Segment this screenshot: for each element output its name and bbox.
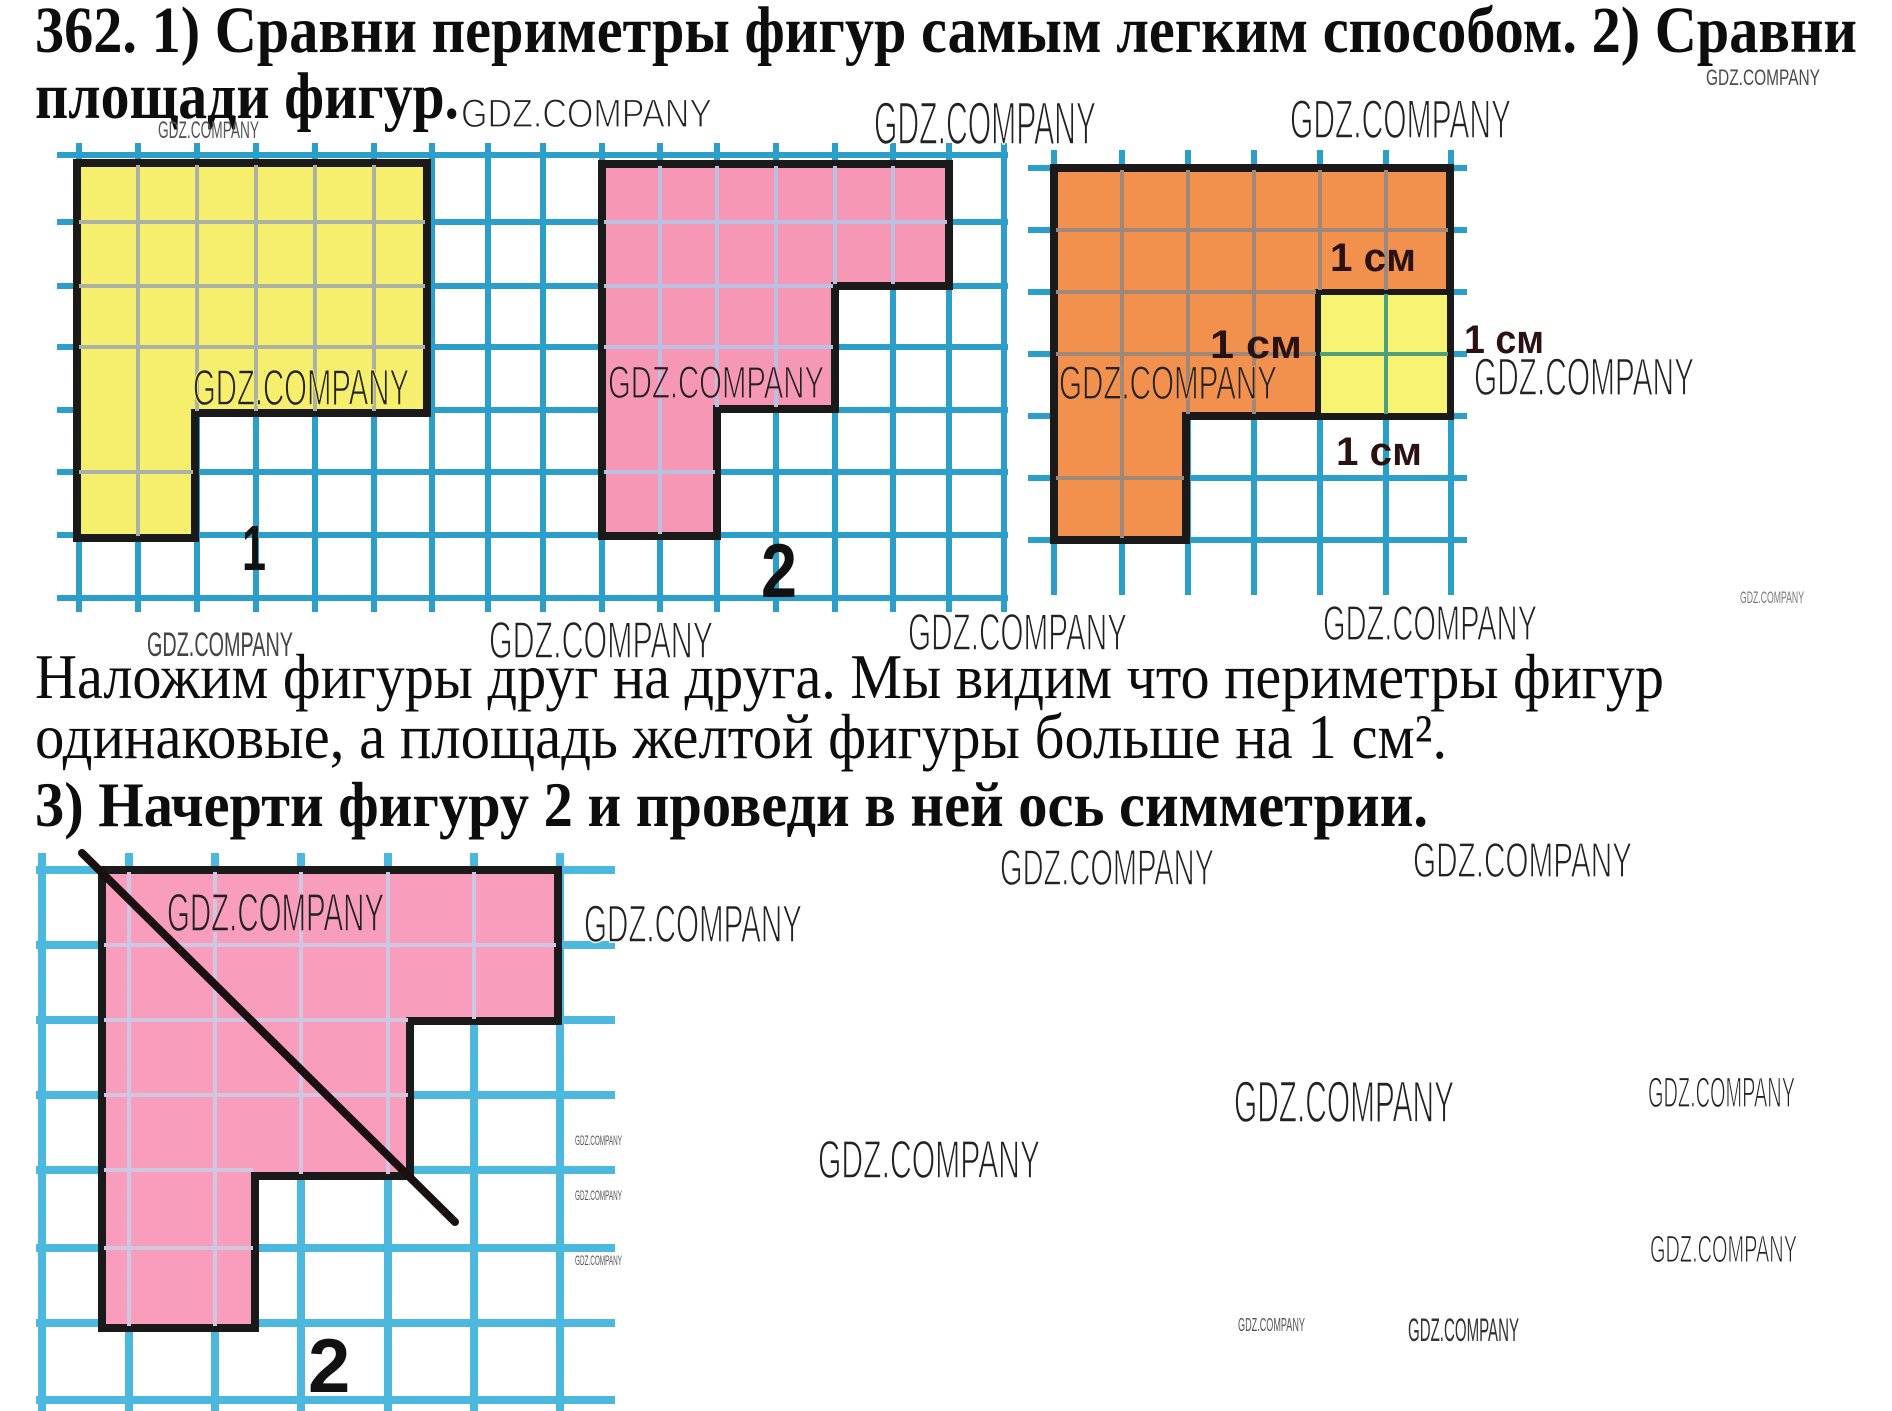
svg-text:GDZ.COMPANY: GDZ.COMPANY bbox=[1740, 588, 1804, 607]
svg-text:GDZ.COMPANY: GDZ.COMPANY bbox=[1000, 839, 1214, 896]
svg-text:GDZ.COMPANY: GDZ.COMPANY bbox=[575, 1132, 622, 1148]
svg-text:GDZ.COMPANY: GDZ.COMPANY bbox=[874, 90, 1096, 157]
svg-text:GDZ.COMPANY: GDZ.COMPANY bbox=[167, 883, 384, 943]
svg-text:GDZ.COMPANY: GDZ.COMPANY bbox=[193, 359, 409, 416]
svg-text:GDZ.COMPANY: GDZ.COMPANY bbox=[1474, 348, 1694, 407]
svg-text:362. 1) Сравни периметры фигур: 362. 1) Сравни периметры фигур самым лег… bbox=[35, 0, 1857, 67]
svg-text:GDZ.COMPANY: GDZ.COMPANY bbox=[1413, 834, 1632, 888]
svg-text:GDZ.COMPANY: GDZ.COMPANY bbox=[1650, 1229, 1797, 1271]
svg-text:одинаковые, а площадь желтой ф: одинаковые, а площадь желтой фигуры боль… bbox=[35, 701, 1447, 772]
svg-text:GDZ.COMPANY: GDZ.COMPANY bbox=[1408, 1312, 1519, 1348]
svg-text:1 см: 1 см bbox=[1336, 430, 1422, 474]
svg-text:GDZ.COMPANY: GDZ.COMPANY bbox=[1323, 597, 1537, 651]
svg-text:1 см: 1 см bbox=[1330, 236, 1416, 280]
svg-text:2: 2 bbox=[308, 1324, 350, 1409]
svg-text:GDZ.COMPANY: GDZ.COMPANY bbox=[575, 1252, 622, 1268]
svg-text:GDZ.COMPANY: GDZ.COMPANY bbox=[461, 92, 712, 136]
svg-text:GDZ.COMPANY: GDZ.COMPANY bbox=[1706, 65, 1820, 90]
svg-text:GDZ.COMPANY: GDZ.COMPANY bbox=[489, 612, 713, 670]
svg-text:GDZ.COMPANY: GDZ.COMPANY bbox=[584, 895, 802, 954]
svg-text:GDZ.COMPANY: GDZ.COMPANY bbox=[1238, 1315, 1305, 1335]
svg-text:GDZ.COMPANY: GDZ.COMPANY bbox=[608, 357, 824, 408]
svg-text:GDZ.COMPANY: GDZ.COMPANY bbox=[575, 1187, 622, 1203]
svg-text:1: 1 bbox=[242, 512, 266, 584]
svg-text:3) Начерти фигуру 2 и проведи: 3) Начерти фигуру 2 и проведи в ней ось … bbox=[35, 769, 1428, 840]
svg-text:GDZ.COMPANY: GDZ.COMPANY bbox=[1648, 1069, 1795, 1117]
svg-text:GDZ.COMPANY: GDZ.COMPANY bbox=[1234, 1070, 1454, 1135]
svg-text:GDZ.COMPANY: GDZ.COMPANY bbox=[908, 604, 1127, 662]
svg-text:GDZ.COMPANY: GDZ.COMPANY bbox=[1059, 356, 1277, 409]
svg-text:GDZ.COMPANY: GDZ.COMPANY bbox=[818, 1130, 1040, 1190]
svg-text:GDZ.COMPANY: GDZ.COMPANY bbox=[147, 626, 293, 664]
svg-text:GDZ.COMPANY: GDZ.COMPANY bbox=[1290, 88, 1511, 150]
svg-text:2: 2 bbox=[761, 529, 797, 614]
svg-text:GDZ.COMPANY: GDZ.COMPANY bbox=[158, 117, 259, 144]
